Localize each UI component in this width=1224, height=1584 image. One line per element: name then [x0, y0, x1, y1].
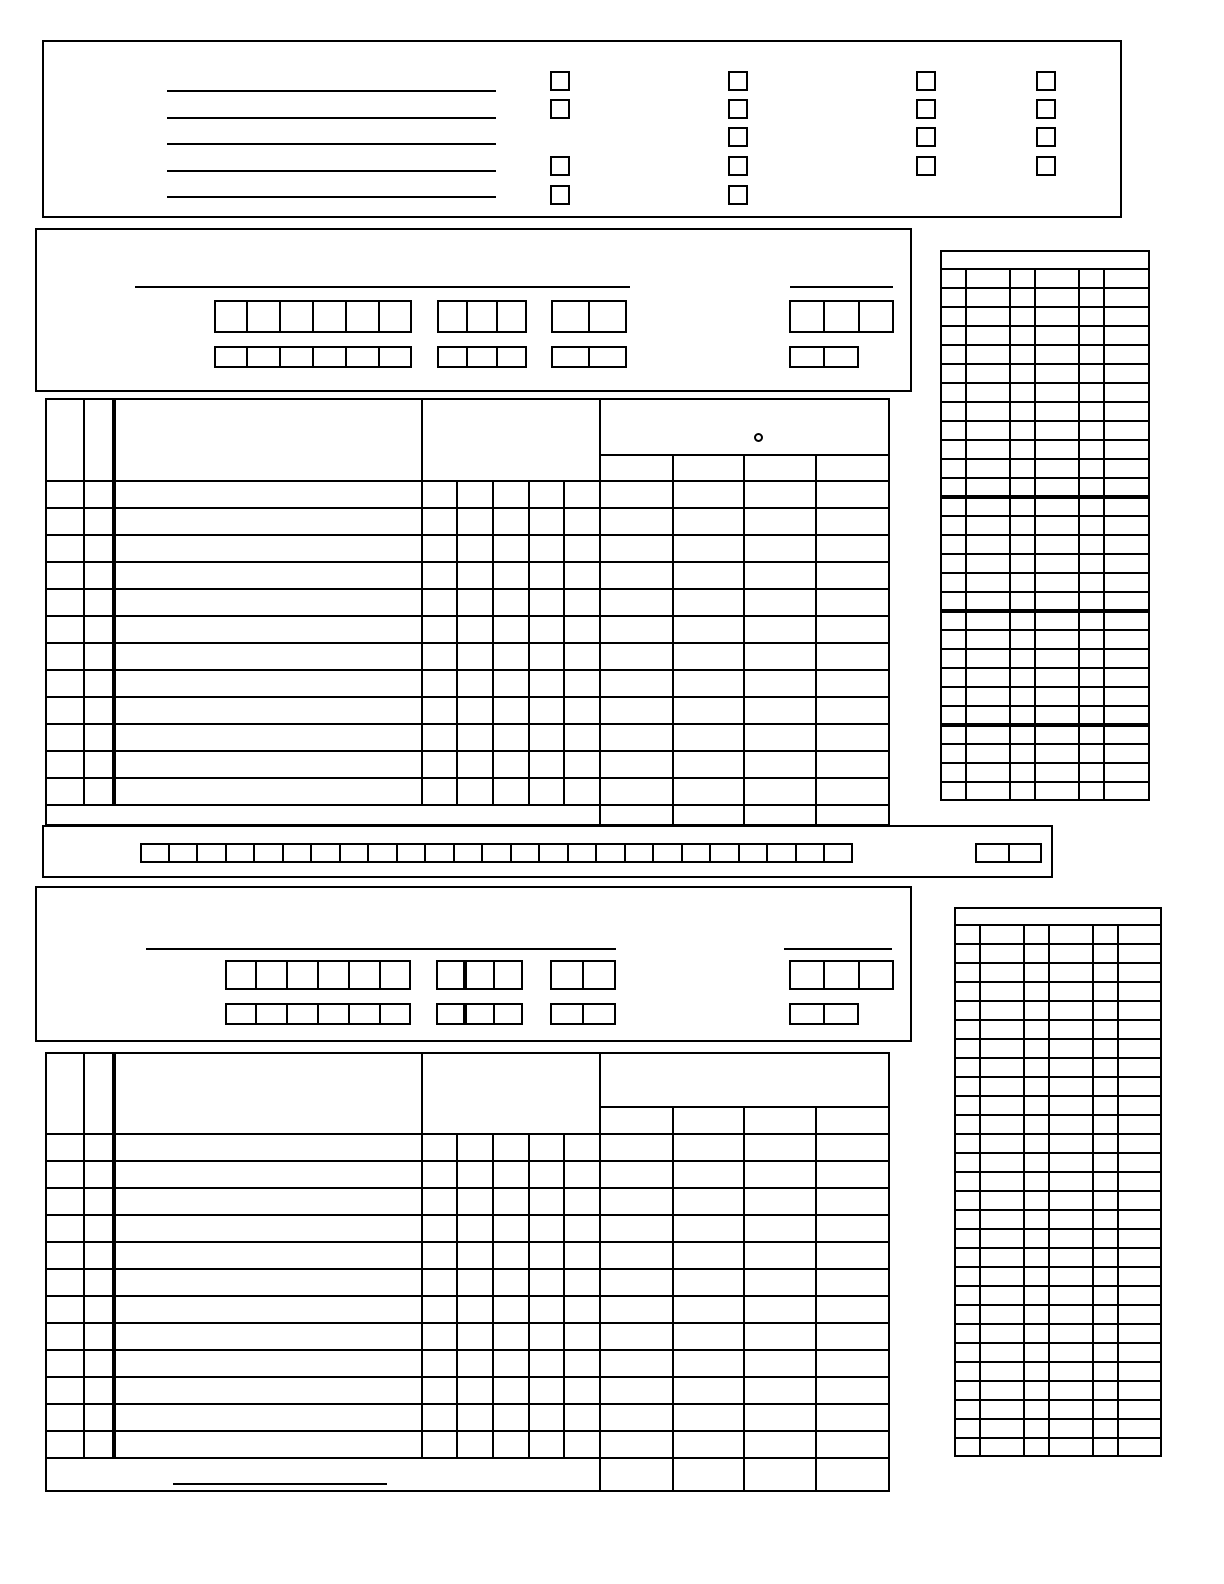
grid-cell[interactable]: [1093, 944, 1118, 963]
grid-cell[interactable]: [1093, 1058, 1118, 1077]
grid-cell[interactable]: [1024, 1400, 1049, 1419]
grid-cell[interactable]: [980, 1191, 1024, 1210]
grid-cell[interactable]: [1118, 1210, 1162, 1229]
grid-cell[interactable]: [1024, 1172, 1049, 1191]
grid-cell[interactable]: [1049, 1077, 1093, 1096]
grid-cell[interactable]: [1024, 1305, 1049, 1324]
grid-cell[interactable]: [1024, 1134, 1049, 1153]
grid-cell[interactable]: [1049, 1058, 1093, 1077]
grid-cell[interactable]: [1024, 1324, 1049, 1343]
grid-cell[interactable]: [954, 1134, 980, 1153]
grid-cell[interactable]: [980, 944, 1024, 963]
grid-cell[interactable]: [1024, 1362, 1049, 1381]
grid-cell[interactable]: [1118, 1077, 1162, 1096]
grid-cell[interactable]: [1024, 1381, 1049, 1400]
grid-cell[interactable]: [1118, 1020, 1162, 1039]
grid-cell[interactable]: [1118, 925, 1162, 944]
grid-cell[interactable]: [1024, 1267, 1049, 1286]
grid-cell[interactable]: [954, 1077, 980, 1096]
grid-cell[interactable]: [980, 1077, 1024, 1096]
grid-cell[interactable]: [1049, 1438, 1093, 1457]
grid-cell[interactable]: [1118, 1438, 1162, 1457]
grid-cell[interactable]: [1024, 1115, 1049, 1134]
grid-cell[interactable]: [1049, 1229, 1093, 1248]
grid-cell[interactable]: [1049, 1172, 1093, 1191]
grid-cell[interactable]: [980, 1324, 1024, 1343]
grid-cell[interactable]: [1093, 1419, 1118, 1438]
grid-cell[interactable]: [954, 1400, 980, 1419]
grid-cell[interactable]: [1093, 1191, 1118, 1210]
grid-cell[interactable]: [1024, 1191, 1049, 1210]
grid-cell[interactable]: [954, 1362, 980, 1381]
grid-cell[interactable]: [1093, 1115, 1118, 1134]
grid-cell[interactable]: [1093, 1001, 1118, 1020]
grid-cell[interactable]: [1024, 982, 1049, 1001]
grid-cell[interactable]: [954, 1381, 980, 1400]
grid-cell[interactable]: [1049, 1400, 1093, 1419]
grid-cell[interactable]: [980, 963, 1024, 982]
grid-cell[interactable]: [1093, 1077, 1118, 1096]
grid-cell[interactable]: [1118, 1305, 1162, 1324]
grid-cell[interactable]: [1049, 1134, 1093, 1153]
grid-cell[interactable]: [1093, 1343, 1118, 1362]
grid-cell[interactable]: [1093, 925, 1118, 944]
grid-cell[interactable]: [1049, 1267, 1093, 1286]
grid-cell[interactable]: [980, 1229, 1024, 1248]
grid-cell[interactable]: [1093, 1248, 1118, 1267]
grid-cell[interactable]: [1024, 1020, 1049, 1039]
grid-cell[interactable]: [1024, 1419, 1049, 1438]
grid-cell[interactable]: [980, 1381, 1024, 1400]
grid-cell[interactable]: [1049, 1248, 1093, 1267]
grid-cell[interactable]: [1049, 1305, 1093, 1324]
score-grid-b: [0, 0, 1224, 1584]
grid-cell[interactable]: [980, 1400, 1024, 1419]
grid-cell[interactable]: [980, 1267, 1024, 1286]
grid-cell[interactable]: [1093, 1438, 1118, 1457]
grid-cell[interactable]: [954, 1039, 980, 1058]
grid-cell[interactable]: [954, 1286, 980, 1305]
grid-cell[interactable]: [1118, 982, 1162, 1001]
grid-cell[interactable]: [980, 925, 1024, 944]
grid-cell[interactable]: [1024, 1077, 1049, 1096]
grid-cell[interactable]: [980, 1096, 1024, 1115]
grid-cell[interactable]: [1118, 1400, 1162, 1419]
grid-cell[interactable]: [1049, 1115, 1093, 1134]
grid-cell[interactable]: [1093, 1172, 1118, 1191]
grid-cell[interactable]: [1118, 1362, 1162, 1381]
grid-cell[interactable]: [980, 1343, 1024, 1362]
grid-cell[interactable]: [980, 1419, 1024, 1438]
grid-cell[interactable]: [1049, 1362, 1093, 1381]
grid-cell[interactable]: [1093, 1039, 1118, 1058]
grid-cell[interactable]: [1093, 1324, 1118, 1343]
grid-cell[interactable]: [954, 1248, 980, 1267]
grid-cell[interactable]: [1049, 1096, 1093, 1115]
grid-cell[interactable]: [1118, 944, 1162, 963]
grid-cell[interactable]: [1118, 1039, 1162, 1058]
grid-cell[interactable]: [1049, 963, 1093, 982]
grid-cell[interactable]: [954, 982, 980, 1001]
grid-cell[interactable]: [954, 1305, 980, 1324]
grid-cell[interactable]: [1093, 1381, 1118, 1400]
grid-cell[interactable]: [980, 1039, 1024, 1058]
grid-cell[interactable]: [980, 1115, 1024, 1134]
grid-cell[interactable]: [1024, 1343, 1049, 1362]
grid-cell[interactable]: [1118, 963, 1162, 982]
grid-cell[interactable]: [1024, 1438, 1049, 1457]
grid-cell[interactable]: [1118, 1286, 1162, 1305]
grid-header-cell: [954, 907, 1162, 925]
grid-cell[interactable]: [1118, 1191, 1162, 1210]
grid-cell[interactable]: [1049, 1001, 1093, 1020]
grid-cell[interactable]: [1093, 982, 1118, 1001]
grid-cell[interactable]: [1118, 1419, 1162, 1438]
grid-cell[interactable]: [954, 925, 980, 944]
grid-cell[interactable]: [980, 1286, 1024, 1305]
grid-cell[interactable]: [1093, 1305, 1118, 1324]
grid-cell[interactable]: [1118, 1134, 1162, 1153]
grid-cell[interactable]: [1118, 1001, 1162, 1020]
grid-cell[interactable]: [1118, 1058, 1162, 1077]
grid-cell[interactable]: [1024, 1058, 1049, 1077]
grid-cell[interactable]: [1049, 1419, 1093, 1438]
grid-cell[interactable]: [980, 1020, 1024, 1039]
grid-cell[interactable]: [980, 1153, 1024, 1172]
grid-cell[interactable]: [1118, 1229, 1162, 1248]
grid-cell[interactable]: [1093, 1020, 1118, 1039]
grid-cell[interactable]: [1093, 963, 1118, 982]
grid-cell[interactable]: [1118, 1381, 1162, 1400]
grid-cell[interactable]: [980, 1438, 1024, 1457]
grid-cell[interactable]: [1093, 1096, 1118, 1115]
grid-cell[interactable]: [980, 1210, 1024, 1229]
grid-cell[interactable]: [1093, 1267, 1118, 1286]
grid-cell[interactable]: [1024, 944, 1049, 963]
grid-cell[interactable]: [954, 1419, 980, 1438]
grid-cell[interactable]: [1118, 1248, 1162, 1267]
grid-cell[interactable]: [980, 1305, 1024, 1324]
grid-cell[interactable]: [980, 1058, 1024, 1077]
grid-cell[interactable]: [954, 1229, 980, 1248]
grid-cell[interactable]: [1024, 1001, 1049, 1020]
grid-cell[interactable]: [980, 1001, 1024, 1020]
grid-cell[interactable]: [1118, 1267, 1162, 1286]
grid-cell[interactable]: [954, 1210, 980, 1229]
grid-cell[interactable]: [1024, 925, 1049, 944]
grid-cell[interactable]: [1093, 1229, 1118, 1248]
grid-cell[interactable]: [1049, 1286, 1093, 1305]
grid-cell[interactable]: [954, 1343, 980, 1362]
grid-cell[interactable]: [980, 982, 1024, 1001]
grid-cell[interactable]: [954, 1438, 980, 1457]
grid-cell[interactable]: [1049, 1324, 1093, 1343]
grid-cell[interactable]: [980, 1248, 1024, 1267]
grid-cell[interactable]: [1049, 944, 1093, 963]
grid-cell[interactable]: [954, 1191, 980, 1210]
grid-cell[interactable]: [954, 1001, 980, 1020]
grid-cell[interactable]: [1118, 1096, 1162, 1115]
grid-cell[interactable]: [1118, 1153, 1162, 1172]
grid-cell[interactable]: [980, 1134, 1024, 1153]
grid-cell[interactable]: [1049, 925, 1093, 944]
grid-cell[interactable]: [980, 1172, 1024, 1191]
grid-cell[interactable]: [1093, 1400, 1118, 1419]
grid-cell[interactable]: [1093, 1362, 1118, 1381]
grid-cell[interactable]: [1024, 1286, 1049, 1305]
scoresheet-page: [0, 0, 1224, 1584]
grid-cell[interactable]: [1093, 1134, 1118, 1153]
grid-cell[interactable]: [1024, 1039, 1049, 1058]
grid-cell[interactable]: [1049, 1381, 1093, 1400]
grid-cell[interactable]: [1049, 1020, 1093, 1039]
grid-cell[interactable]: [954, 1115, 980, 1134]
grid-cell[interactable]: [1093, 1286, 1118, 1305]
grid-cell[interactable]: [954, 944, 980, 963]
grid-cell[interactable]: [1049, 982, 1093, 1001]
grid-cell[interactable]: [954, 1058, 980, 1077]
grid-cell[interactable]: [954, 1267, 980, 1286]
grid-cell[interactable]: [980, 1362, 1024, 1381]
grid-cell[interactable]: [1093, 1153, 1118, 1172]
grid-cell[interactable]: [954, 1096, 980, 1115]
grid-cell[interactable]: [1049, 1039, 1093, 1058]
grid-cell[interactable]: [954, 1020, 980, 1039]
grid-cell[interactable]: [954, 1172, 980, 1191]
grid-cell[interactable]: [1049, 1153, 1093, 1172]
grid-cell[interactable]: [1024, 1210, 1049, 1229]
grid-cell[interactable]: [1024, 1229, 1049, 1248]
grid-cell[interactable]: [1024, 963, 1049, 982]
grid-cell[interactable]: [954, 1324, 980, 1343]
grid-cell[interactable]: [1024, 1096, 1049, 1115]
grid-cell[interactable]: [1024, 1248, 1049, 1267]
grid-cell[interactable]: [1049, 1343, 1093, 1362]
grid-cell[interactable]: [1118, 1343, 1162, 1362]
grid-cell[interactable]: [1118, 1115, 1162, 1134]
grid-cell[interactable]: [1049, 1210, 1093, 1229]
grid-cell[interactable]: [954, 1153, 980, 1172]
grid-cell[interactable]: [1118, 1172, 1162, 1191]
grid-cell[interactable]: [1093, 1210, 1118, 1229]
grid-cell[interactable]: [1049, 1191, 1093, 1210]
grid-cell[interactable]: [954, 963, 980, 982]
grid-cell[interactable]: [1024, 1153, 1049, 1172]
grid-cell[interactable]: [1118, 1324, 1162, 1343]
